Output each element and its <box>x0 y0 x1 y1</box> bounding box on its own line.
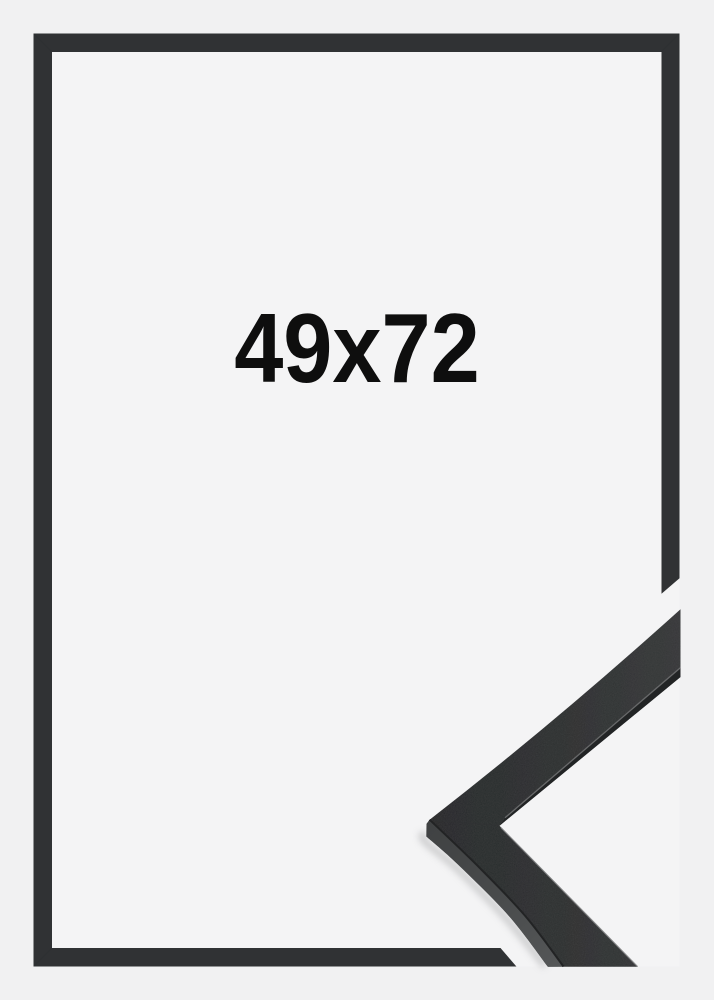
svg-text:49x72: 49x72 <box>234 293 480 403</box>
